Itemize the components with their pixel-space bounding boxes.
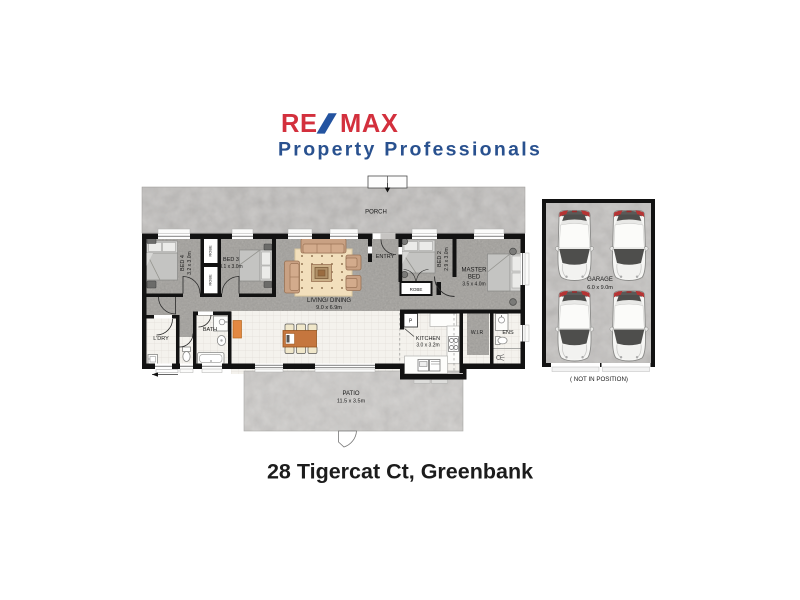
svg-text:Property Professionals: Property Professionals <box>278 139 542 161</box>
svg-text:MASTER: MASTER <box>461 268 487 274</box>
svg-text:28 Tigercat Ct, Greenbank: 28 Tigercat Ct, Greenbank <box>267 460 533 484</box>
svg-text:3.1 x 3.0m: 3.1 x 3.0m <box>219 264 242 270</box>
svg-text:L'DRY: L'DRY <box>153 336 169 342</box>
svg-text:3.0 x 3.2m: 3.0 x 3.2m <box>416 343 439 349</box>
svg-text:LIVING/ DINING: LIVING/ DINING <box>307 298 351 304</box>
svg-text:ENTRY: ENTRY <box>376 254 395 260</box>
svg-text:BED 4: BED 4 <box>180 255 186 271</box>
svg-text:3.2 x 3.0m: 3.2 x 3.0m <box>187 251 193 274</box>
svg-text:ENS: ENS <box>502 330 514 336</box>
svg-text:MAX: MAX <box>340 110 398 138</box>
svg-text:6.0 x 9.0m: 6.0 x 9.0m <box>587 285 613 291</box>
svg-text:ROBE: ROBE <box>208 274 213 286</box>
svg-text:GARAGE: GARAGE <box>587 277 613 283</box>
svg-text:W.I.R: W.I.R <box>471 330 484 336</box>
svg-text:11.5 x 3.5m: 11.5 x 3.5m <box>337 399 366 405</box>
svg-text:3.5 x 4.0m: 3.5 x 4.0m <box>462 282 485 288</box>
svg-text:ROBE: ROBE <box>208 245 213 257</box>
svg-text:2.9 x 3.0m: 2.9 x 3.0m <box>444 247 450 270</box>
svg-text:BED: BED <box>468 275 481 281</box>
svg-text:RE: RE <box>281 110 318 138</box>
svg-text:BED 2: BED 2 <box>437 251 443 267</box>
svg-text:BATH: BATH <box>203 327 217 333</box>
svg-text:( NOT IN POSITION): ( NOT IN POSITION) <box>570 376 628 383</box>
svg-text:PATIO: PATIO <box>342 391 359 397</box>
svg-text:BED 3: BED 3 <box>223 257 239 263</box>
svg-text:KITCHEN: KITCHEN <box>416 336 440 342</box>
svg-text:9.0 x 6.9m: 9.0 x 6.9m <box>316 305 342 311</box>
svg-text:ROBE: ROBE <box>410 287 423 292</box>
svg-text:PORCH: PORCH <box>365 210 387 216</box>
